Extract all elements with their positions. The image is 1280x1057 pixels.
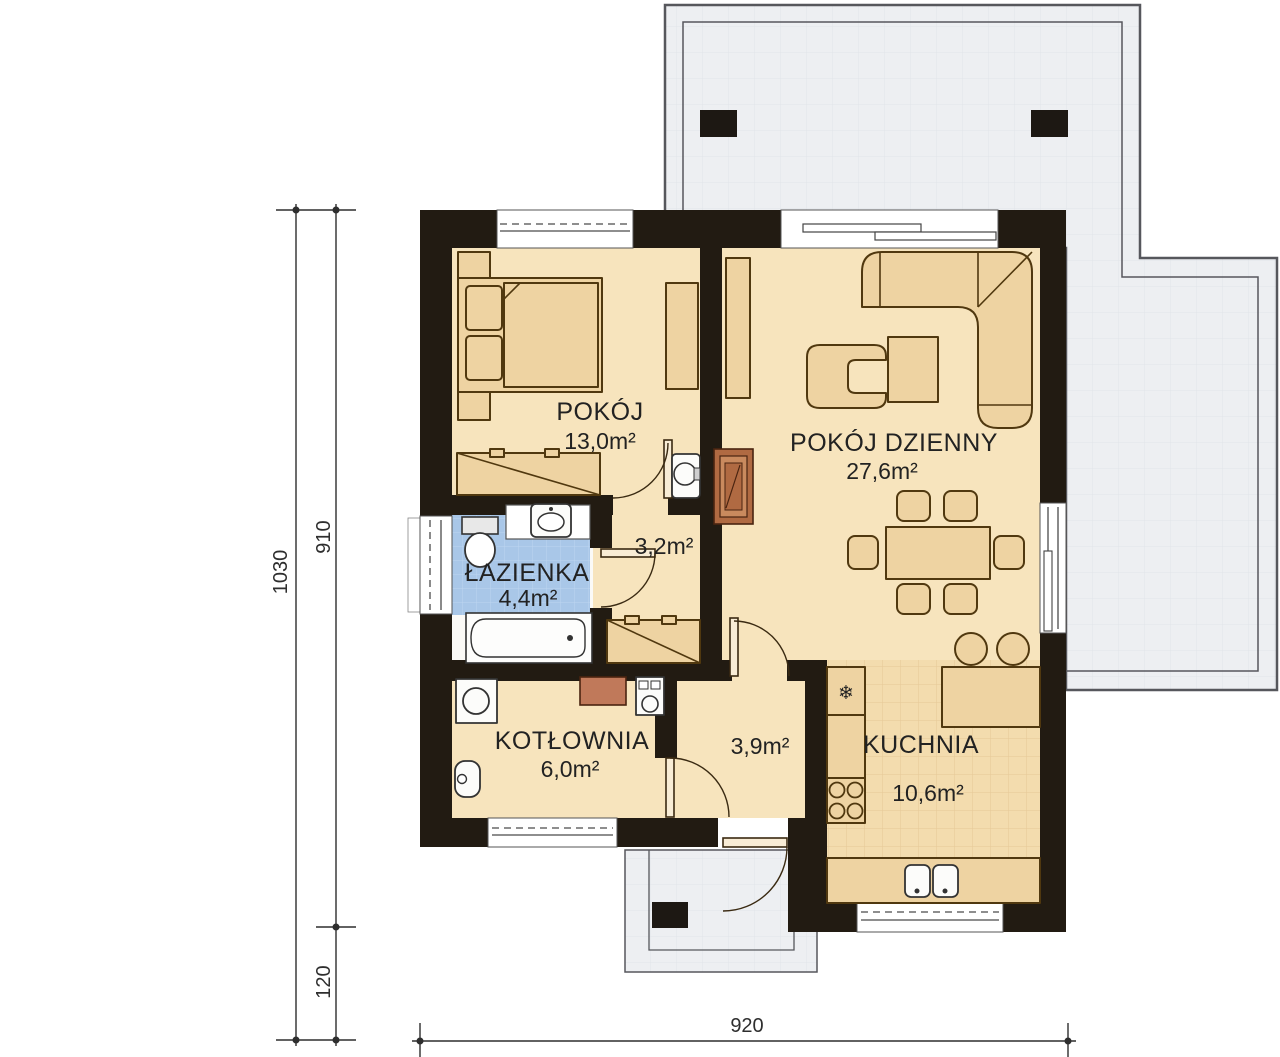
- wall-hall-kitchen: [805, 681, 827, 903]
- terrace-column-left: [700, 110, 737, 137]
- bathroom-label: ŁAZIENKA: [465, 559, 590, 587]
- porch-mat: [652, 902, 688, 928]
- chimney: [714, 449, 753, 524]
- dining-chair: [994, 536, 1024, 569]
- kitchen-area: 10,6m²: [892, 780, 964, 806]
- floor-plan-page: ❄: [0, 0, 1280, 1057]
- boiler-room-label: KOTŁOWNIA: [495, 727, 650, 755]
- wall-mid-filler: [787, 660, 827, 681]
- kitchen-window: [857, 903, 1003, 932]
- water-heater: [455, 761, 480, 797]
- dimension-left-total-label: 1030: [270, 550, 292, 595]
- bar-stool: [955, 633, 987, 665]
- balcony-door: [1040, 503, 1066, 633]
- dimension-left-main-label: 910: [313, 520, 335, 553]
- dining-chair: [944, 584, 977, 614]
- pillow: [466, 336, 502, 380]
- double-bed: [458, 278, 602, 392]
- bedroom-window: [497, 210, 633, 248]
- boiler-room-area: 6,0m²: [541, 756, 600, 782]
- hall-small-area: 3,2m²: [635, 533, 694, 559]
- terrace-column-right: [1031, 110, 1068, 137]
- bedroom-closet: [457, 449, 600, 495]
- dimension-left-total: 1030: [270, 204, 316, 1046]
- kitchen-counter-side: [827, 715, 865, 778]
- stove: [827, 778, 865, 823]
- coffee-table: [888, 337, 938, 402]
- dining-chair: [897, 584, 930, 614]
- dimension-bottom: 920: [412, 1015, 1076, 1057]
- washing-machine: [456, 679, 497, 723]
- floor-plan-canvas: ❄: [0, 0, 1280, 1057]
- wall-hall-living: [700, 524, 722, 664]
- nightstand-top: [458, 252, 490, 280]
- dimension-bottom-label: 920: [730, 1015, 763, 1037]
- bedroom-label: POKÓJ: [556, 397, 643, 426]
- hall-entry-area: 3,9m²: [731, 733, 790, 759]
- mattress: [504, 283, 598, 387]
- dimension-left-segments: 910 120: [313, 204, 356, 1046]
- kitchen-peninsula: [942, 667, 1040, 727]
- living-hall-threshold: [732, 660, 787, 684]
- living-room-label: POKÓJ DZIENNY: [790, 428, 998, 457]
- bedroom-area: 13,0m²: [564, 428, 636, 454]
- wall-bathroom-hall-upper: [590, 515, 612, 548]
- bathroom-area: 4,4m²: [499, 585, 558, 611]
- dimension-left-porch-label: 120: [313, 965, 335, 998]
- nightstand-bottom: [458, 392, 490, 420]
- fridge-icon: ❄: [838, 683, 854, 704]
- bathtub: [466, 613, 592, 663]
- bathtub-drain: [567, 635, 573, 641]
- boiler-unit: [580, 677, 626, 705]
- laundry-appliance: [636, 677, 664, 715]
- living-room-window: [781, 210, 998, 248]
- hall-washbasin: [672, 454, 700, 498]
- dining-chair: [944, 491, 977, 521]
- living-room-area: 27,6m²: [846, 458, 918, 484]
- pillow: [466, 286, 502, 330]
- washbasin: [531, 504, 571, 537]
- dining-chair: [848, 536, 878, 569]
- tv-shelf: [726, 258, 750, 398]
- boiler-room-window: [488, 818, 617, 847]
- hall-closet: [607, 616, 700, 663]
- bathroom-window: [408, 516, 452, 614]
- dining-table: [886, 527, 990, 579]
- bar-stool: [997, 633, 1029, 665]
- kitchen-label: KUCHNIA: [863, 731, 979, 759]
- wardrobe: [666, 283, 698, 389]
- dining-chair: [897, 491, 930, 521]
